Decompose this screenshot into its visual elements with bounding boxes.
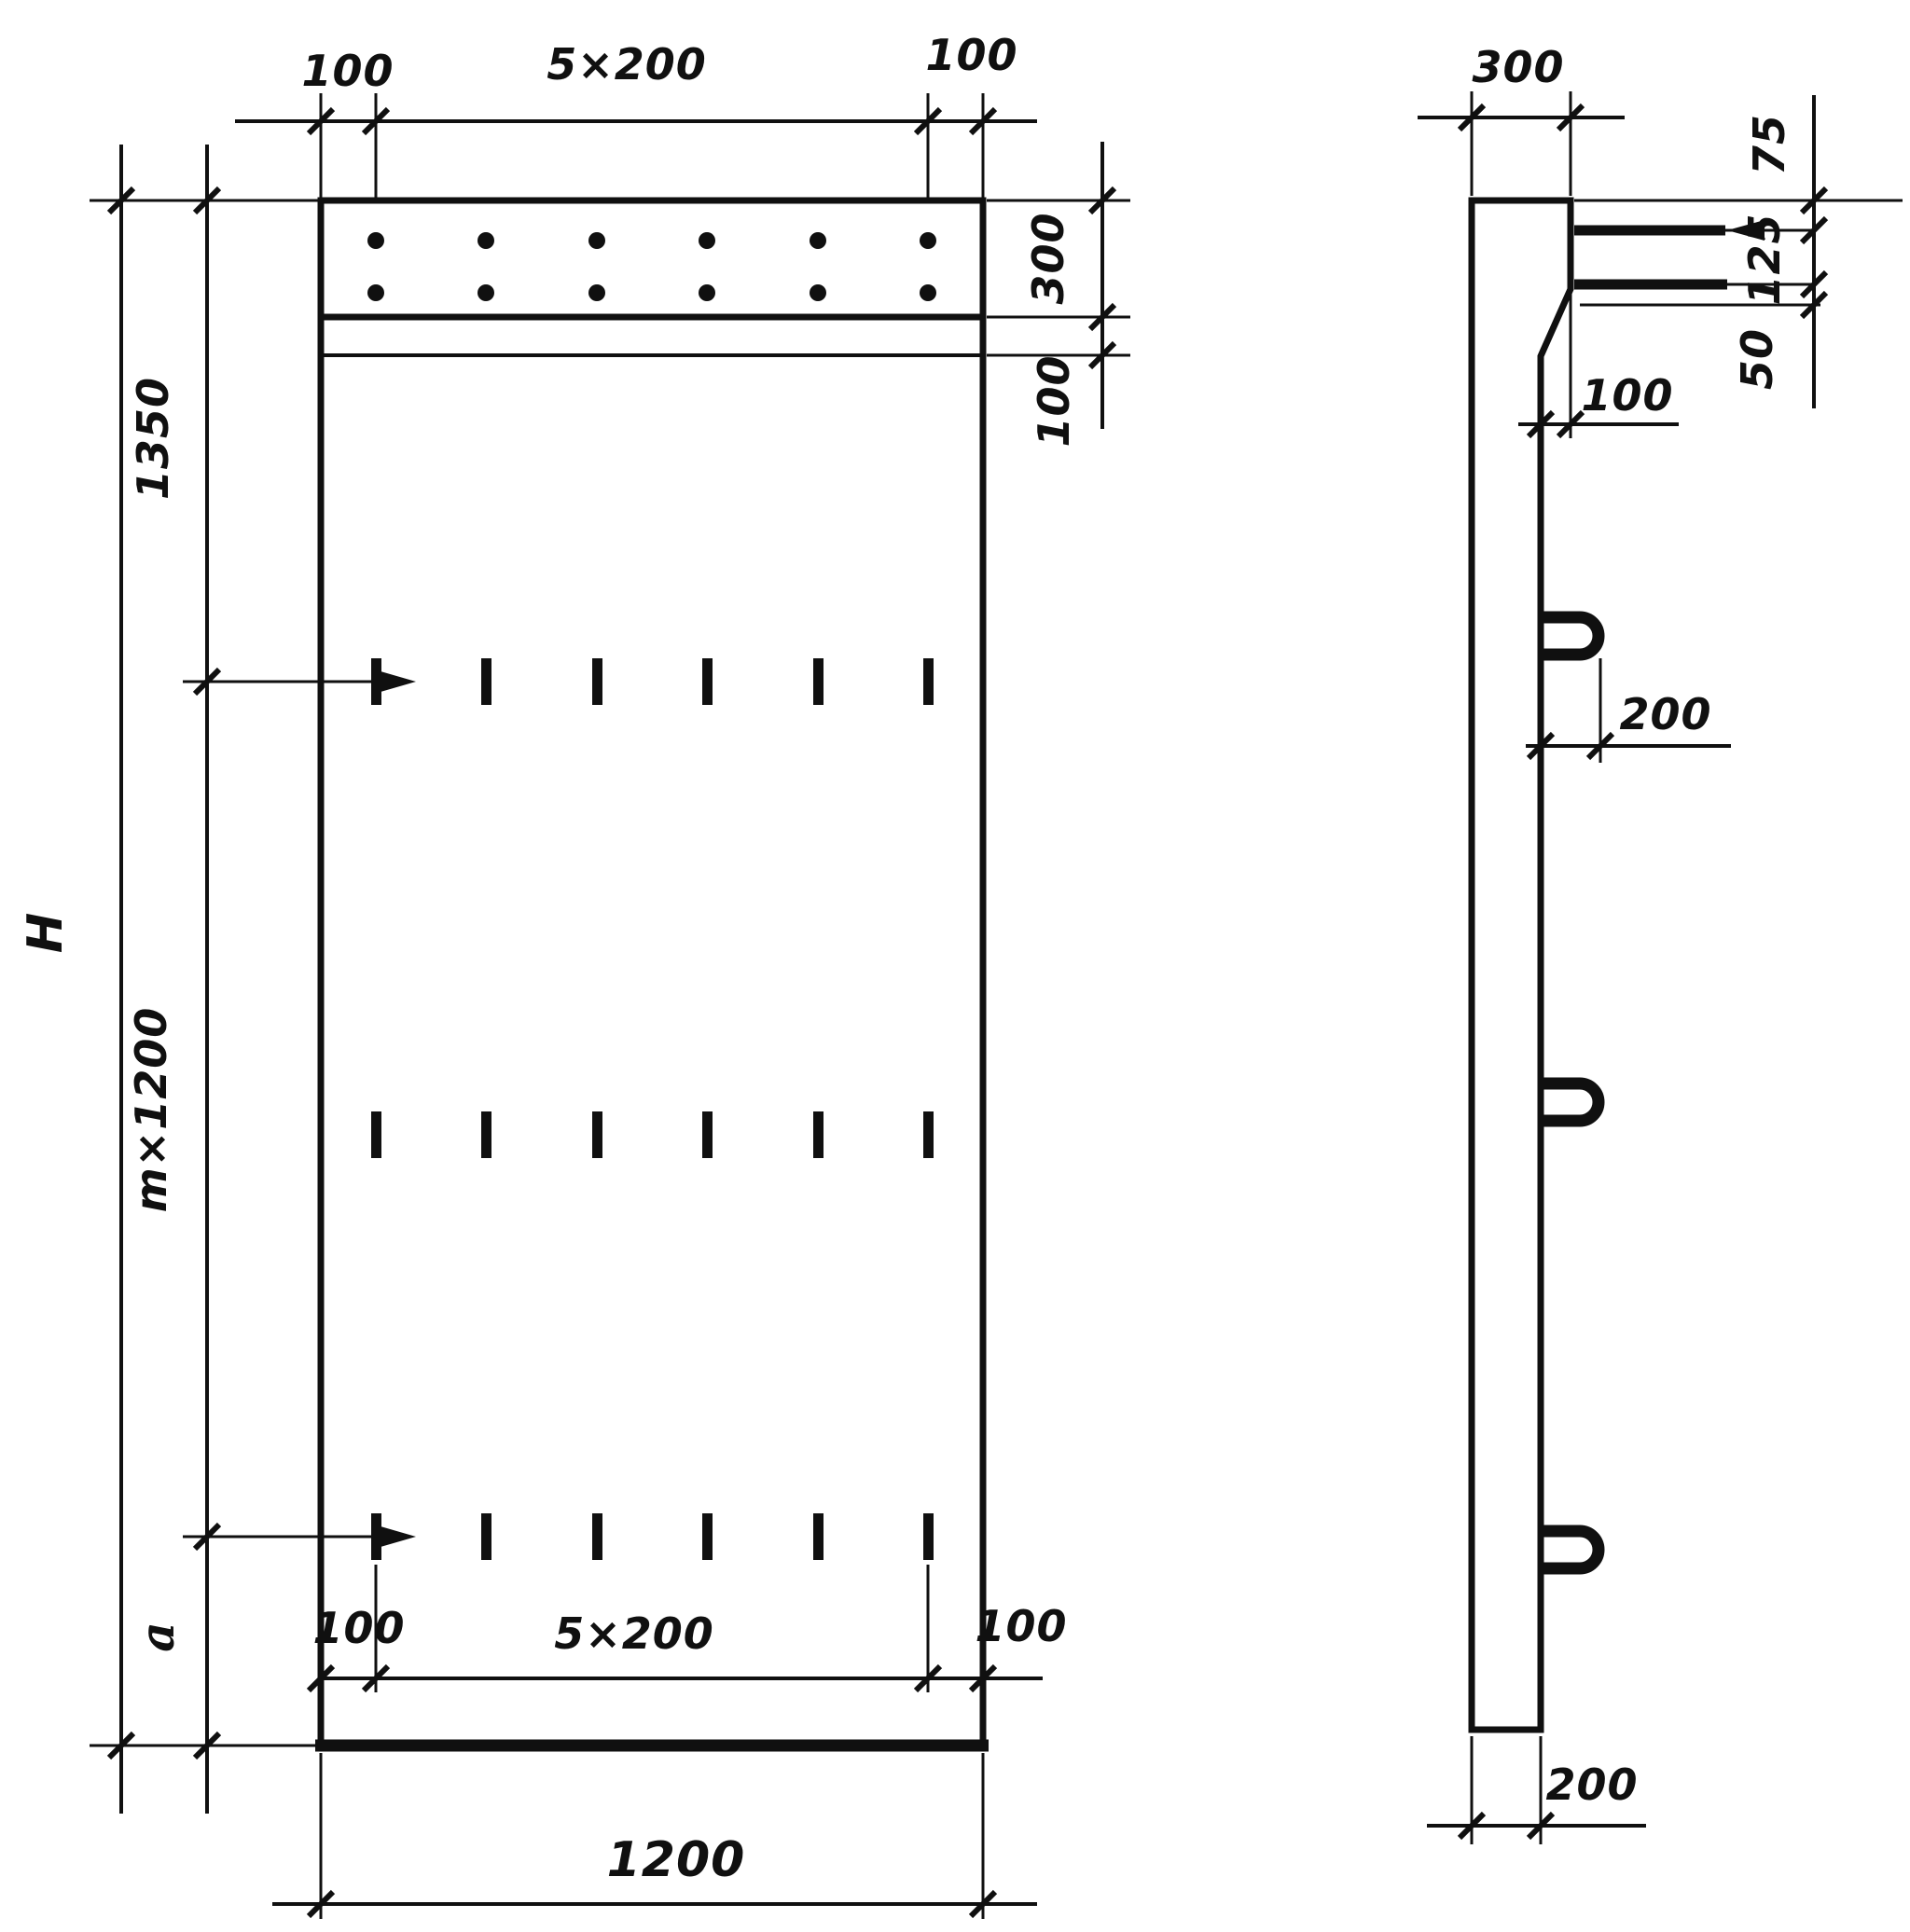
dim-side-top-width: 300 — [1472, 42, 1564, 92]
dim-front-overall-width: 1200 — [607, 1832, 746, 1888]
dim-side-bar-gap: 125 — [1739, 213, 1790, 305]
side-loop-dimension: 200 — [1526, 658, 1731, 763]
slot-marks — [371, 658, 934, 1560]
dim-side-loop-length: 200 — [1619, 689, 1711, 739]
dim-front-bottom-left: 100 — [312, 1603, 405, 1653]
dim-side-bottom-width: 200 — [1545, 1759, 1638, 1810]
dim-front-middle-mx1200: m×1200 — [126, 1007, 176, 1213]
panel-drawing: 100 5×200 100 300 100 — [0, 0, 1910, 1932]
side-right-chain-dimension: 75 125 50 — [1732, 95, 1826, 408]
protruding-bars — [1574, 200, 1903, 305]
dim-front-total-height: H — [18, 912, 74, 954]
dim-front-bottom-right: 100 — [975, 1601, 1067, 1651]
anchor-dots — [367, 232, 936, 301]
panel-outline — [315, 200, 989, 1746]
dim-side-step: 100 — [1581, 370, 1673, 421]
front-right-dimension: 300 100 — [987, 142, 1130, 448]
dim-side-bar-bottom-clear: 50 — [1732, 328, 1782, 390]
front-bottom-dimension: 100 5×200 100 — [309, 1565, 1068, 1692]
side-view: 300 75 125 50 — [1418, 42, 1903, 1844]
dim-front-top-right: 100 — [925, 30, 1017, 80]
dim-front-bottom-spacing: 5×200 — [554, 1608, 714, 1659]
side-bottom-dimension: 200 — [1427, 1736, 1646, 1844]
technical-drawing-sheet: 100 5×200 100 300 100 — [0, 0, 1910, 1932]
dim-front-band-height: 300 — [1023, 212, 1073, 304]
dim-front-lower-a: a — [130, 1621, 185, 1651]
dim-front-upper-1350: 1350 — [128, 377, 178, 500]
front-view: 100 5×200 100 300 100 — [18, 30, 1130, 1919]
front-top-dimension: 100 5×200 100 — [235, 30, 1037, 198]
front-left-dimension: 1350 H m×1200 a — [18, 145, 416, 1814]
column-outline — [1472, 200, 1571, 1730]
side-top-dimension: 300 — [1418, 42, 1625, 196]
lifting-loops — [1541, 617, 1599, 1568]
dim-front-strip-height: 100 — [1029, 354, 1079, 447]
dim-front-top-left: 100 — [301, 46, 394, 96]
dim-front-top-spacing: 5×200 — [547, 39, 707, 90]
dim-side-bar-top-offset: 75 — [1744, 114, 1794, 175]
front-width-dimension: 1200 — [272, 1753, 1037, 1919]
top-band — [321, 317, 983, 355]
